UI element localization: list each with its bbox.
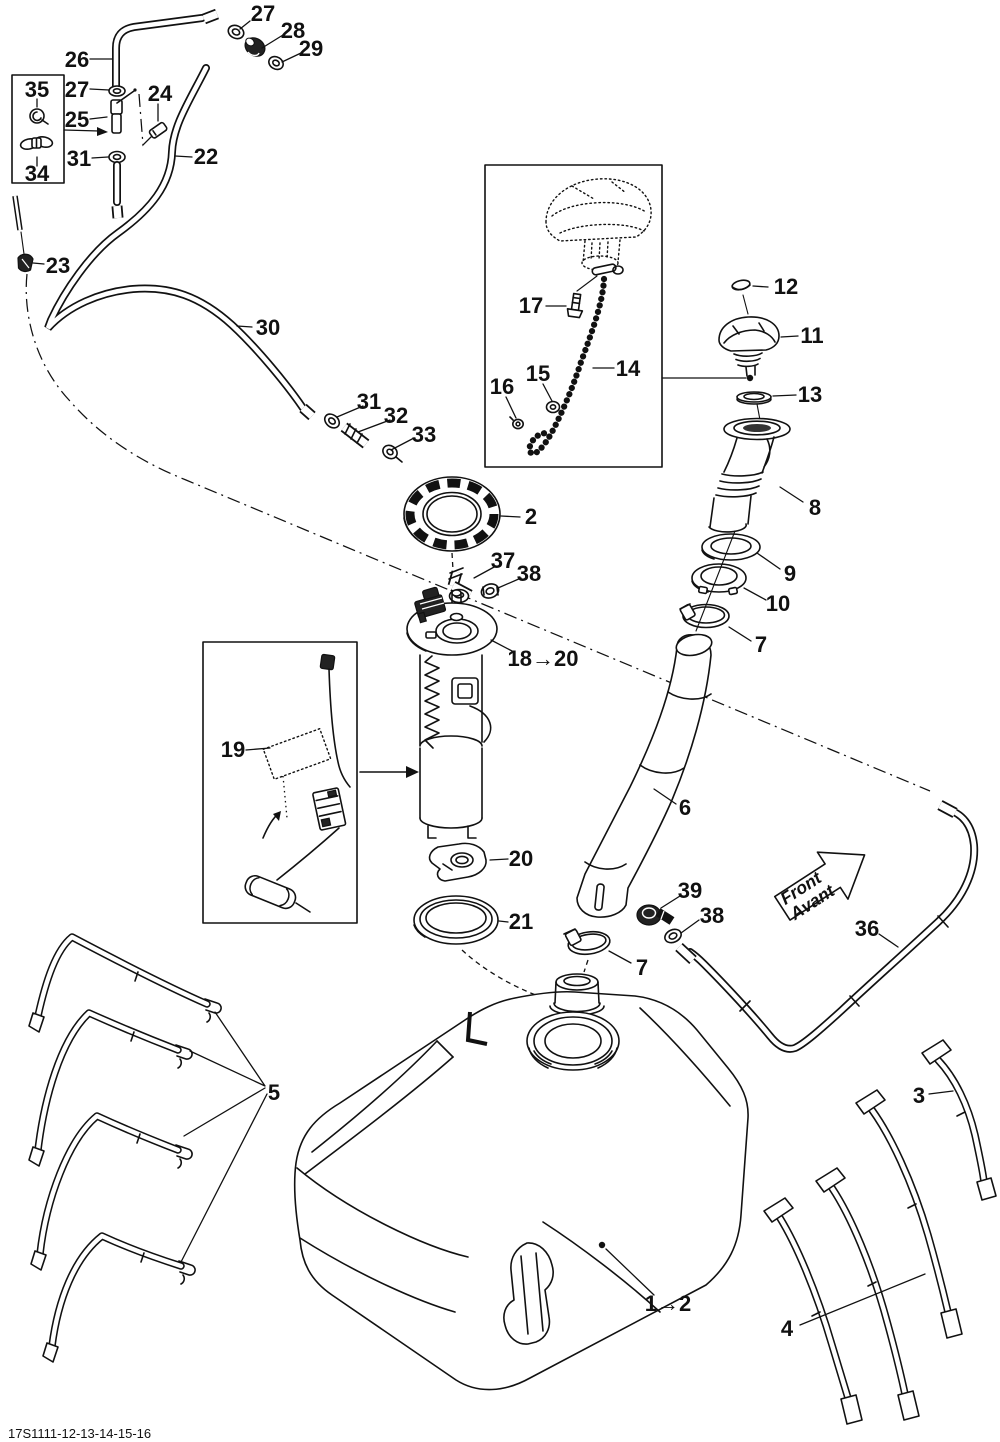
washer-15: [547, 402, 560, 413]
callout-38b: 38: [700, 903, 724, 928]
callout-27a: 27: [251, 1, 275, 26]
fuel-pump-module: [407, 587, 497, 838]
callout-2: 2: [525, 504, 537, 529]
hose-clamp-7b: [564, 929, 611, 957]
stippled-cap: [546, 179, 651, 270]
ring-9: [702, 534, 760, 560]
exploded-view-drawing: Front Avant: [0, 0, 1000, 1442]
screw-17: [567, 293, 585, 318]
strap: [856, 1090, 962, 1338]
callout-37: 37: [491, 548, 515, 573]
clamp-27: [226, 23, 246, 41]
filler-neck-stack: [680, 279, 790, 631]
strap: [922, 1040, 996, 1200]
callout-9: 9: [784, 561, 796, 586]
tank-straps-right: [764, 1040, 996, 1424]
fuel-tank: [295, 974, 749, 1390]
spacer-24: [149, 122, 168, 139]
retainer-20: [430, 843, 487, 881]
seal-ring-21: [414, 896, 498, 944]
grommet-35: [30, 109, 48, 124]
elbow-fitting-39: [637, 905, 672, 925]
check-valve-stack: [109, 86, 137, 218]
callout-33: 33: [412, 422, 436, 447]
float-cylinder: [243, 873, 299, 911]
tank-straps-left: [29, 937, 267, 1362]
callout-10: 10: [766, 591, 790, 616]
strap: [764, 1198, 862, 1424]
float-sensor-box: [203, 642, 419, 923]
callout-36: 36: [855, 916, 879, 941]
callout-8: 8: [809, 495, 821, 520]
callout-38a: 38: [517, 561, 541, 586]
hose-clamp-7a: [680, 604, 729, 628]
callout-17: 17: [519, 293, 543, 318]
callout-35: 35: [25, 77, 49, 102]
callout-34: 34: [25, 161, 50, 186]
nut-38b: [663, 927, 684, 945]
callout-15: 15: [526, 361, 550, 386]
nut-29: [267, 54, 286, 72]
callout-39: 39: [678, 878, 702, 903]
sheet-code: 17S1111-12-13-14-15-16: [8, 1426, 151, 1441]
callout-20: 20: [509, 846, 533, 871]
filler-neck-8: [709, 419, 790, 532]
callout-12: 12: [774, 274, 798, 299]
sensor-module: [313, 788, 346, 831]
callout-30: 30: [256, 315, 280, 340]
callout-6: 6: [679, 795, 691, 820]
callout-18-20: 18→20: [508, 646, 579, 671]
strap: [816, 1168, 919, 1420]
fuel-cap-11: [719, 317, 779, 376]
clip-34: [20, 135, 54, 150]
callout-3: 3: [913, 1083, 925, 1108]
tether-pin-12: [731, 279, 750, 292]
clamp-31: [322, 411, 342, 430]
callout-31b: 31: [357, 389, 381, 414]
strap: [31, 1116, 192, 1270]
screw-16: [510, 417, 523, 429]
lock-ring-10: [692, 564, 746, 595]
nut-38a: [479, 582, 500, 601]
callout-23: 23: [46, 253, 70, 278]
strap: [43, 1236, 195, 1362]
gasket-13: [737, 392, 771, 404]
tank-filler-opening: [527, 1012, 619, 1070]
tether-chain-14: [529, 264, 623, 454]
callout-7a: 7: [755, 632, 767, 657]
callout-13: 13: [798, 382, 822, 407]
callout-7b: 7: [636, 955, 648, 980]
callout-27b: 27: [65, 77, 89, 102]
callout-4: 4: [781, 1316, 794, 1341]
callout-5: 5: [268, 1080, 280, 1105]
callout-31a: 31: [67, 146, 91, 171]
callout-32: 32: [384, 403, 408, 428]
callout-21: 21: [509, 909, 533, 934]
vent-cap-23: [18, 254, 33, 271]
callout-14: 14: [616, 356, 641, 381]
parts-diagram: Front Avant: [0, 0, 1000, 1442]
callout-25: 25: [65, 107, 89, 132]
callout-26: 26: [65, 47, 89, 72]
callout-22: 22: [194, 144, 218, 169]
callout-19: 19: [221, 737, 245, 762]
callout-29: 29: [299, 36, 323, 61]
callout-1-2: 1→2: [645, 1291, 691, 1316]
callout-16: 16: [490, 374, 514, 399]
callout-11: 11: [800, 323, 823, 348]
fitting-32: [344, 424, 366, 444]
callout-24: 24: [148, 81, 173, 106]
strap: [29, 937, 221, 1032]
